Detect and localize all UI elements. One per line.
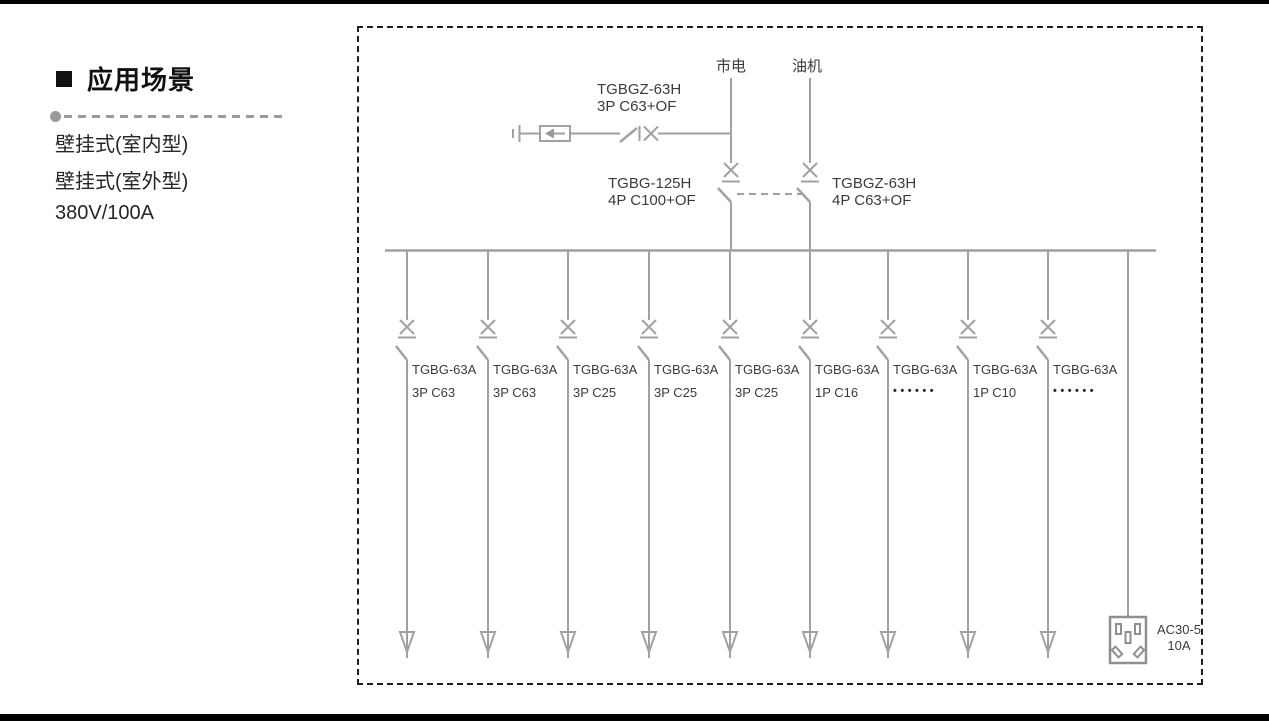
socket-rating: 10A	[1150, 638, 1208, 654]
branch-feeder	[957, 251, 977, 658]
branch-label-6: TGBG-63A 1P C16	[815, 362, 879, 400]
branch-feeder	[396, 251, 416, 658]
branch-feeder	[799, 251, 819, 658]
spd-breaker-model: TGBGZ-63H	[597, 81, 681, 98]
spd-arrester-icon	[540, 126, 570, 141]
mains-line	[718, 78, 740, 251]
branch-feeder	[877, 251, 897, 658]
branch-label-9: TGBG-63A ••••••	[1053, 362, 1117, 397]
branch-label-3: TGBG-63A 3P C25	[573, 362, 637, 400]
page: 应用场景 壁挂式(室内型) 壁挂式(室外型) 380V/100A	[0, 0, 1269, 721]
mains-breaker-spec: 4P C100+OF	[608, 192, 696, 209]
spd-breaker-icon	[620, 126, 658, 142]
branch-label-4: TGBG-63A 3P C25	[654, 362, 718, 400]
branch-feeder	[719, 251, 739, 658]
branch-label-7: TGBG-63A ••••••	[893, 362, 957, 397]
branch-label-8: TGBG-63A 1P C10	[973, 362, 1037, 400]
branch-feeder	[477, 251, 497, 658]
generator-breaker-spec: 4P C63+OF	[832, 192, 916, 209]
switch-blade-icon	[718, 188, 731, 202]
mains-breaker-label: TGBG-125H 4P C100+OF	[608, 175, 696, 209]
generator-breaker-label: TGBGZ-63H 4P C63+OF	[832, 175, 916, 209]
branch-feeder	[638, 251, 658, 658]
mains-source-label: 市电	[716, 58, 746, 75]
generator-line	[797, 78, 819, 251]
generator-source-label: 油机	[792, 58, 822, 75]
mains-breaker-model: TGBG-125H	[608, 175, 696, 192]
generator-breaker-model: TGBGZ-63H	[832, 175, 916, 192]
socket-label: AC30-5 10A	[1150, 622, 1208, 654]
socket-icon	[1110, 617, 1146, 663]
branch-label-2: TGBG-63A 3P C63	[493, 362, 557, 400]
breaker-x-icon	[803, 163, 817, 177]
branch-feeder	[1037, 251, 1057, 658]
spd-breaker-label: TGBGZ-63H 3P C63+OF	[597, 81, 681, 115]
branch-label-5: TGBG-63A 3P C25	[735, 362, 799, 400]
breaker-x-icon	[724, 163, 738, 177]
branch-feeder	[557, 251, 577, 658]
socket-model: AC30-5	[1150, 622, 1208, 638]
branch-label-1: TGBG-63A 3P C63	[412, 362, 476, 400]
ground-icon	[513, 125, 540, 142]
branch-feeders	[396, 251, 1057, 658]
spd-breaker-spec: 3P C63+OF	[597, 98, 681, 115]
